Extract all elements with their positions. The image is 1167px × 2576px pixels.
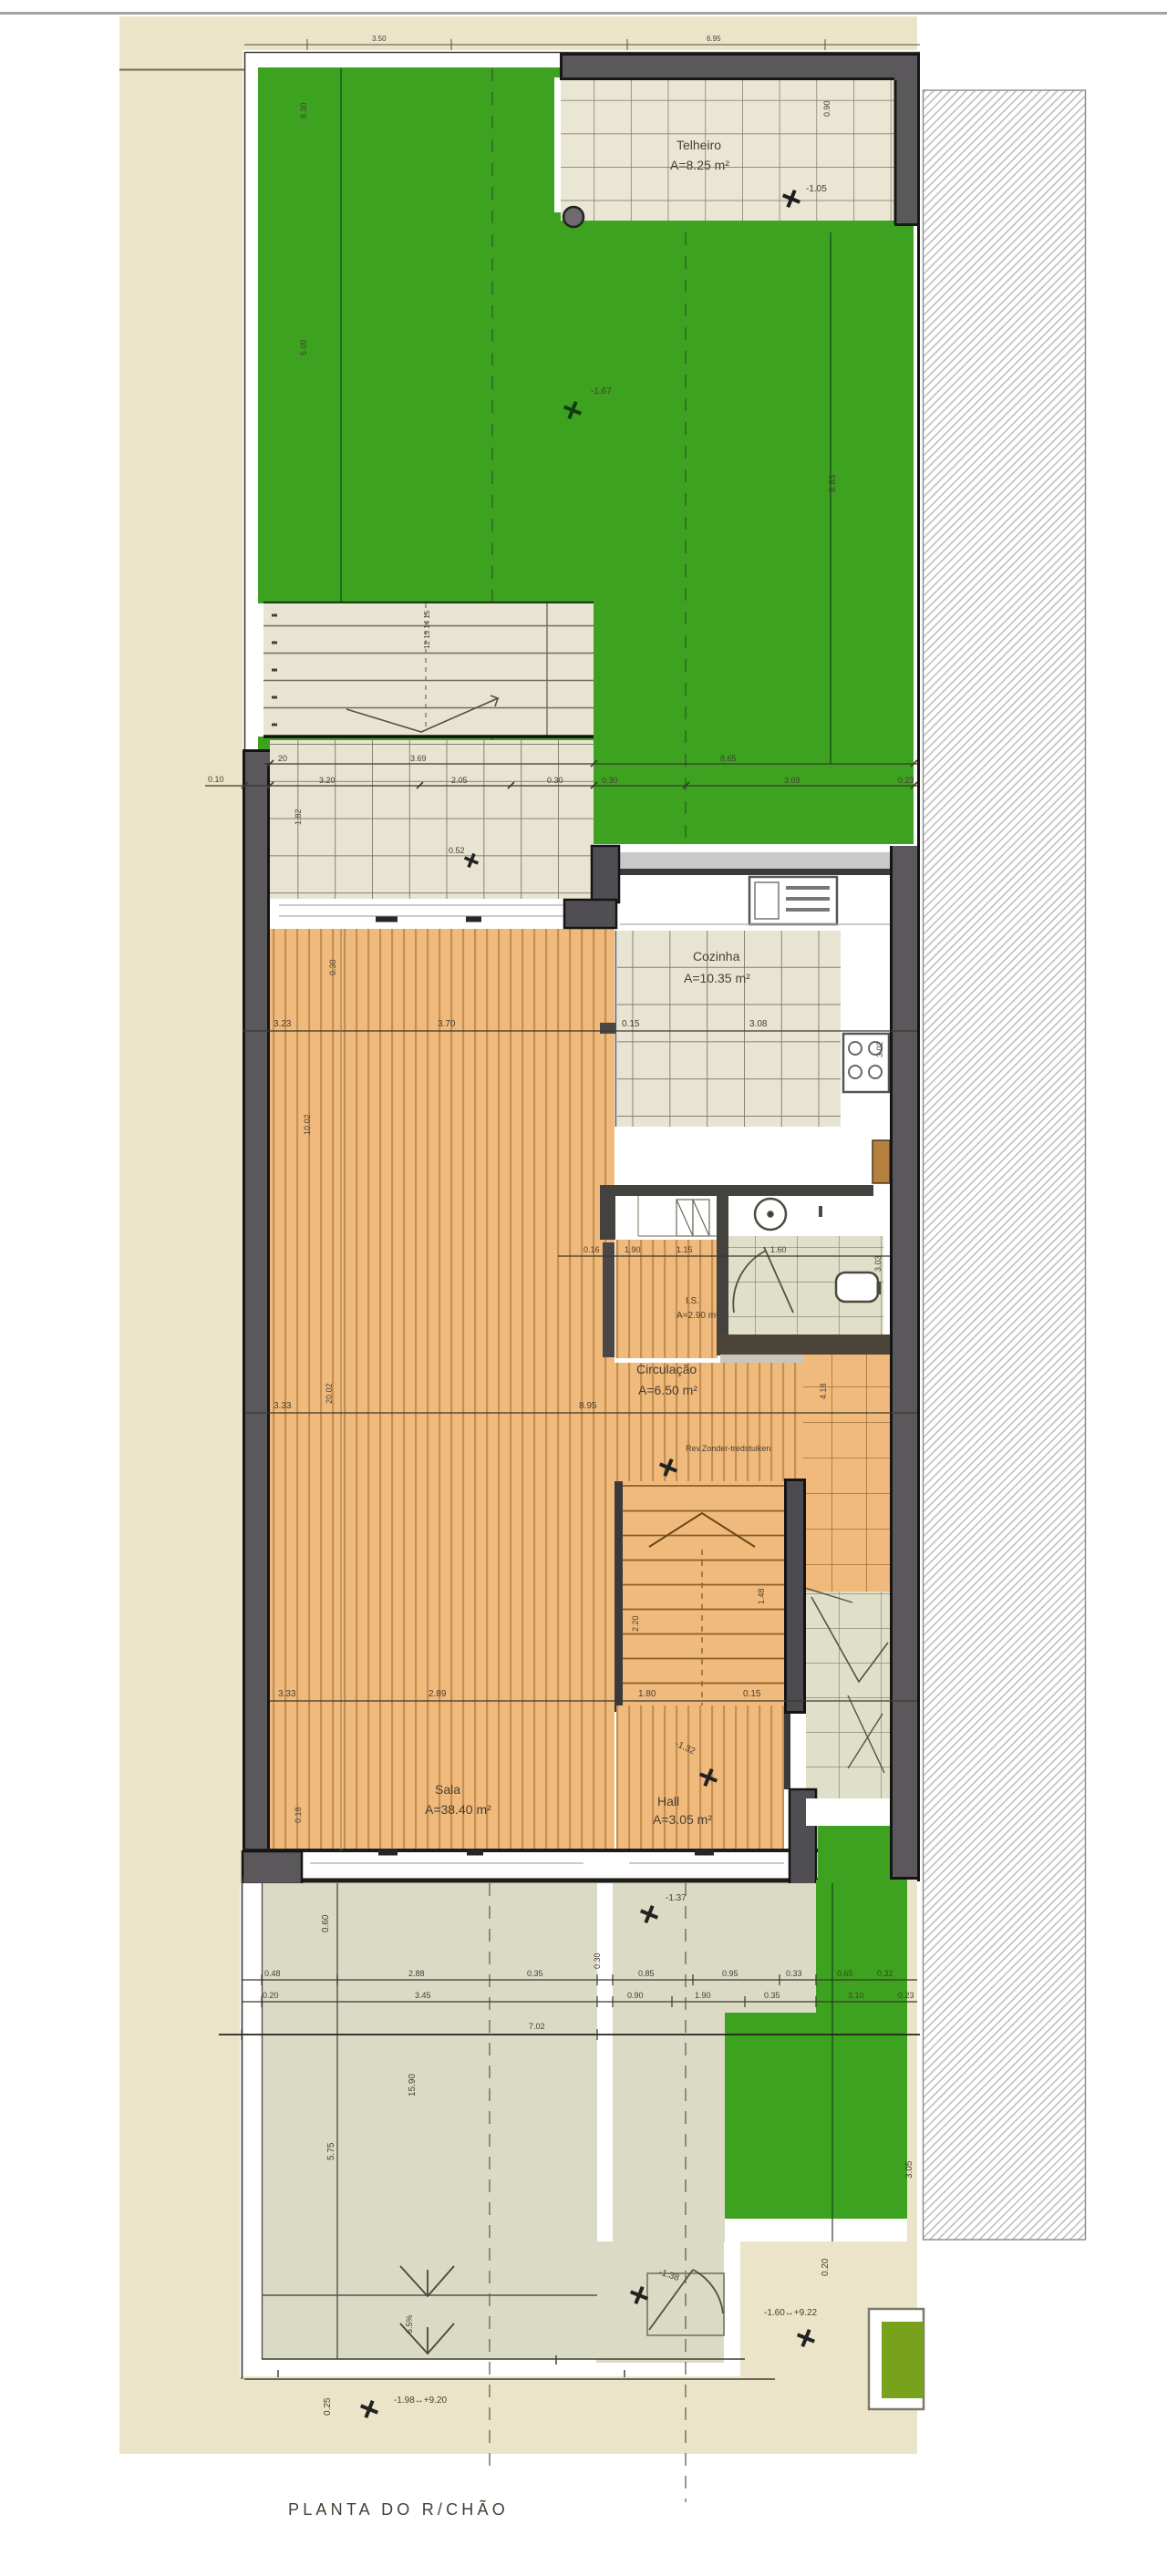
svg-text:12 13 14 15: 12 13 14 15 <box>423 610 431 649</box>
svg-text:15.90: 15.90 <box>408 2074 418 2097</box>
svg-text:3.08: 3.08 <box>749 1019 768 1029</box>
svg-text:0.15: 0.15 <box>743 1689 761 1699</box>
svg-text:0.85: 0.85 <box>638 1969 655 1978</box>
svg-text:0.30: 0.30 <box>328 959 337 975</box>
svg-text:0.35: 0.35 <box>764 1991 780 2000</box>
svg-text:0.15: 0.15 <box>622 1019 640 1029</box>
svg-text:2.20: 2.20 <box>631 1615 640 1632</box>
svg-text:1.48: 1.48 <box>757 1588 766 1604</box>
svg-text:3.09: 3.09 <box>784 776 800 785</box>
svg-text:0.65: 0.65 <box>837 1969 853 1978</box>
svg-text:A=3.05 m²: A=3.05 m² <box>653 1812 712 1827</box>
svg-text:0.35: 0.35 <box>527 1969 543 1978</box>
svg-text:0.10: 0.10 <box>208 775 224 784</box>
svg-text:3.45: 3.45 <box>415 1991 431 2000</box>
svg-text:0.23: 0.23 <box>898 1991 914 2000</box>
svg-text:Hall: Hall <box>657 1794 679 1808</box>
svg-text:-1.05: -1.05 <box>806 184 827 194</box>
svg-text:0.18: 0.18 <box>294 1807 303 1823</box>
svg-text:20.02: 20.02 <box>325 1383 334 1404</box>
svg-text:3.33: 3.33 <box>278 1689 296 1699</box>
svg-text:A=38.40 m²: A=38.40 m² <box>425 1802 491 1817</box>
svg-text:3.05: 3.05 <box>904 2160 914 2179</box>
svg-text:3.03: 3.03 <box>873 1255 883 1272</box>
svg-text:0.30: 0.30 <box>593 1953 602 1969</box>
svg-text:3.20: 3.20 <box>319 776 336 785</box>
svg-text:0.32: 0.32 <box>877 1969 893 1978</box>
svg-text:6.95: 6.95 <box>707 35 721 43</box>
svg-text:0.23: 0.23 <box>898 776 914 785</box>
svg-text:0.20: 0.20 <box>821 2258 831 2276</box>
svg-text:1.15: 1.15 <box>676 1245 693 1254</box>
svg-text:-1.37: -1.37 <box>666 1893 687 1903</box>
svg-text:2.05: 2.05 <box>451 776 468 785</box>
svg-text:0.20: 0.20 <box>263 1991 279 2000</box>
svg-text:5.75: 5.75 <box>326 2142 336 2160</box>
svg-text:0.95: 0.95 <box>722 1969 738 1978</box>
svg-text:0.30: 0.30 <box>602 776 618 785</box>
svg-text:20: 20 <box>278 754 287 763</box>
svg-text:10.02: 10.02 <box>303 1114 312 1135</box>
svg-text:0.25: 0.25 <box>323 2397 333 2416</box>
svg-text:1.80: 1.80 <box>638 1689 656 1699</box>
svg-text:0.30: 0.30 <box>547 776 563 785</box>
svg-text:8.95: 8.95 <box>579 1401 597 1411</box>
svg-text:0.90: 0.90 <box>627 1991 644 2000</box>
svg-text:A=6.50 m²: A=6.50 m² <box>638 1383 697 1397</box>
svg-text:6.5%: 6.5% <box>405 2314 414 2334</box>
svg-text:Cozinha: Cozinha <box>693 949 740 963</box>
svg-text:3.23: 3.23 <box>274 1019 292 1029</box>
svg-text:2.89: 2.89 <box>429 1689 447 1699</box>
svg-text:1.60: 1.60 <box>770 1245 787 1254</box>
svg-text:3.10: 3.10 <box>848 1991 864 2000</box>
svg-text:PLANTA DO R/CHÃO: PLANTA DO R/CHÃO <box>288 2499 509 2519</box>
svg-text:8.83: 8.83 <box>828 474 838 492</box>
svg-text:-1.67: -1.67 <box>591 386 612 397</box>
svg-text:3.69: 3.69 <box>410 754 427 763</box>
svg-text:0.52: 0.52 <box>449 846 465 855</box>
svg-text:A=2.90 m²: A=2.90 m² <box>676 1311 719 1321</box>
svg-text:5.00: 5.00 <box>299 339 308 355</box>
svg-text:Circulação: Circulação <box>636 1362 697 1376</box>
svg-text:1.90: 1.90 <box>625 1245 641 1254</box>
svg-text:3.70: 3.70 <box>438 1019 456 1029</box>
svg-text:-1.60↔+9.22: -1.60↔+9.22 <box>764 2308 818 2318</box>
svg-text:1.90: 1.90 <box>695 1991 711 2000</box>
svg-text:A=8.25 m²: A=8.25 m² <box>670 158 729 172</box>
svg-text:0.90: 0.90 <box>822 100 831 117</box>
svg-text:2.88: 2.88 <box>408 1969 425 1978</box>
svg-text:3.33: 3.33 <box>274 1401 292 1411</box>
svg-text:Sala: Sala <box>435 1782 460 1797</box>
svg-text:1.82: 1.82 <box>294 809 303 825</box>
svg-text:4.18: 4.18 <box>819 1383 828 1399</box>
svg-text:3.50: 3.50 <box>372 35 387 43</box>
svg-text:A=10.35 m²: A=10.35 m² <box>684 971 750 985</box>
svg-text:7.02: 7.02 <box>529 2022 545 2031</box>
svg-text:0.33: 0.33 <box>786 1969 802 1978</box>
svg-text:Rev.Zonder-tredstuiken: Rev.Zonder-tredstuiken <box>686 1444 770 1453</box>
svg-text:0.16: 0.16 <box>583 1245 600 1254</box>
svg-text:-1.98↔+9.20: -1.98↔+9.20 <box>394 2396 448 2406</box>
svg-text:Telheiro: Telheiro <box>676 138 721 152</box>
svg-text:0.48: 0.48 <box>264 1969 281 1978</box>
svg-text:0.60: 0.60 <box>321 1914 331 1932</box>
svg-text:8.65: 8.65 <box>720 754 737 763</box>
svg-text:3.02: 3.02 <box>875 1041 884 1057</box>
svg-text:8.30: 8.30 <box>299 102 308 118</box>
svg-text:I.S.: I.S. <box>686 1296 699 1306</box>
